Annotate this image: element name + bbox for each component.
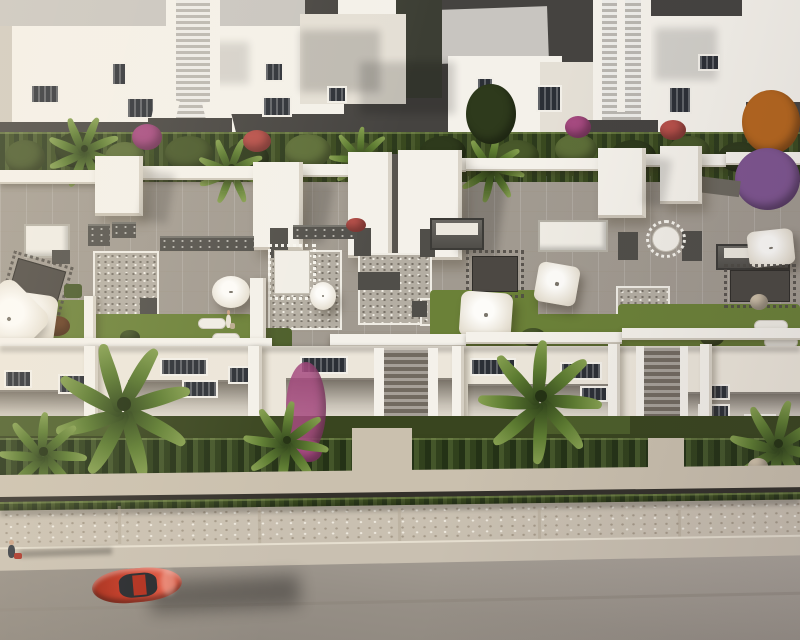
- pedestrian: [4, 540, 22, 562]
- red-car: [90, 558, 190, 612]
- aerial-render-scene: [0, 0, 800, 640]
- car-roof: [132, 574, 146, 595]
- person-body: [14, 553, 22, 559]
- actors: [0, 0, 800, 640]
- pedestrian-shadow: [20, 547, 112, 557]
